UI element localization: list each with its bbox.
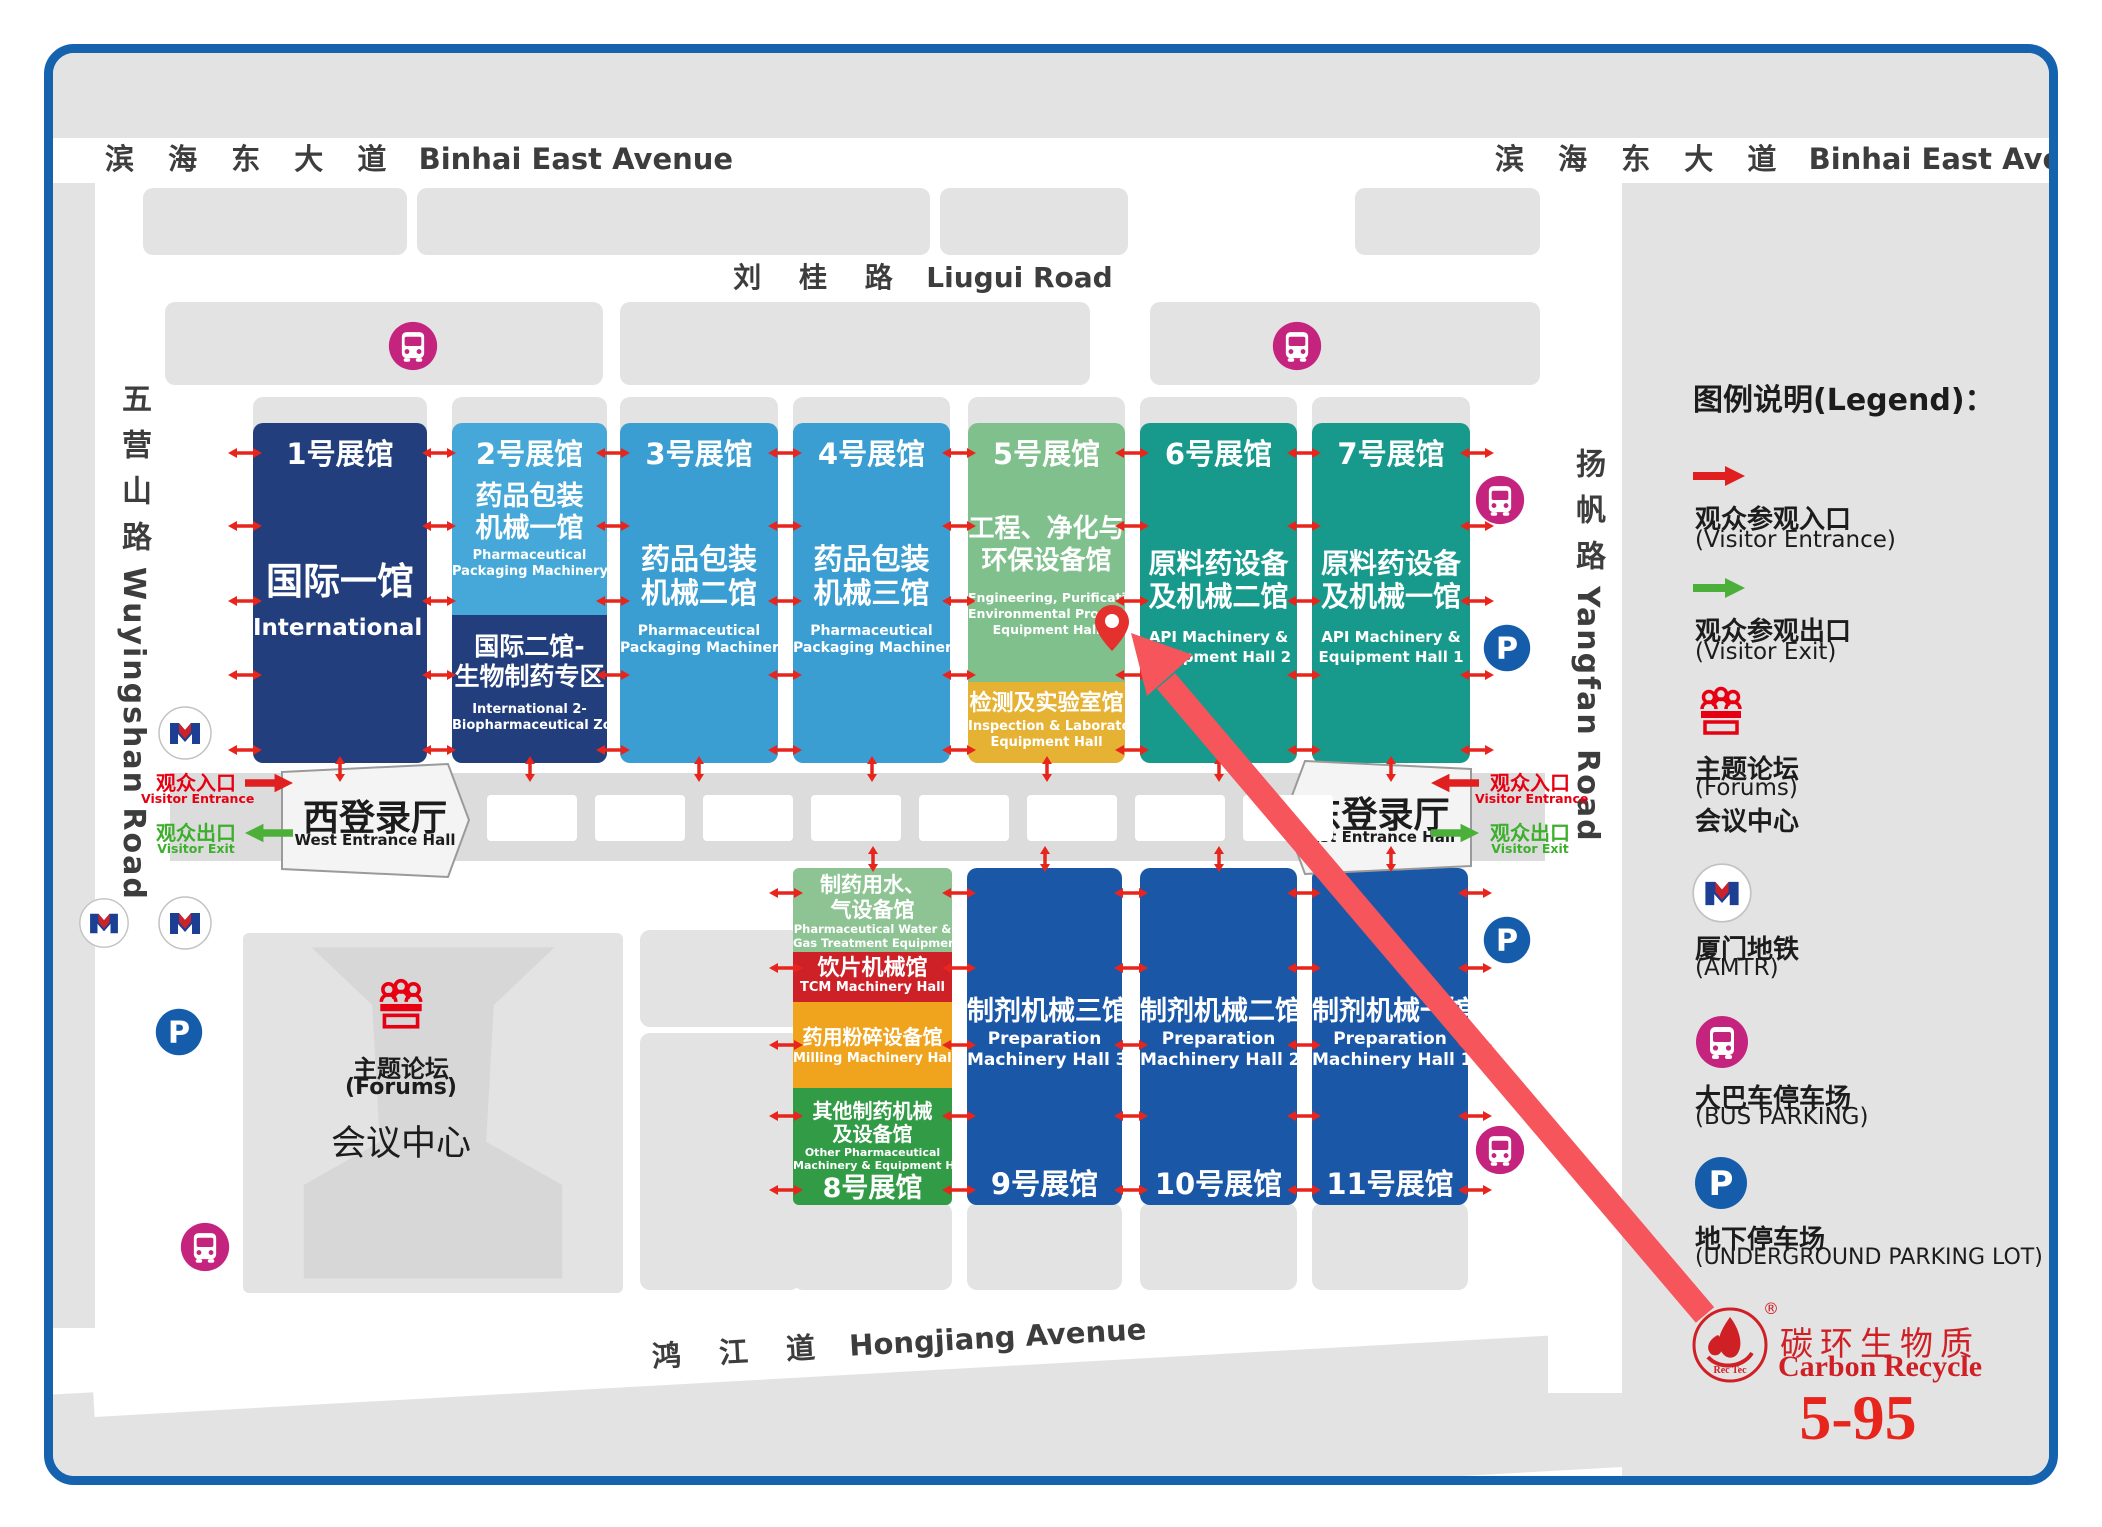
hall-2-bio-zone: 国际二馆- 生物制药专区 International 2- Biopharmac… (452, 615, 607, 763)
block (940, 188, 1128, 255)
hall-2-en2: Packaging Machinery Hall 1 (452, 565, 607, 580)
hall-slab (967, 1203, 1122, 1290)
metro-amtr-icon (157, 705, 213, 765)
bus-parking-icon (1271, 320, 1323, 376)
hall-4-en1: Pharmaceutical (793, 623, 950, 639)
carbon-recycle-logo: Rec Tec (1690, 1305, 1770, 1385)
hall-8-other-section: 其他制药机械 及设备馆 Other Pharmaceutical Machine… (793, 1088, 952, 1205)
connector-arrow-icon (768, 741, 802, 760)
svg-text:Rec Tec: Rec Tec (1713, 1365, 1747, 1376)
connector-arrow-icon (1115, 517, 1149, 536)
block (640, 1033, 800, 1290)
hall-11-zh: 制剂机械一馆 (1312, 996, 1468, 1027)
connector-arrow-icon (1115, 741, 1149, 760)
hall-9: 制剂机械三馆 Preparation Machinery Hall 3 9号展馆 (967, 868, 1122, 1205)
legend-metro-en: (AMTR) (1695, 955, 1779, 981)
hall-slab (793, 1203, 952, 1290)
hall-4-zh1: 药品包装 (793, 543, 950, 576)
connector-arrow-icon (942, 592, 976, 611)
hall-8-tcm-en: TCM Machinery Hall (793, 981, 952, 996)
hall-5-en1: Engineering, Purification & (968, 591, 1125, 605)
hall-7-en2: Equipment Hall 1 (1312, 649, 1470, 666)
hall-5-lab-section: 检测及实验室馆 Inspection & Laboratory Equipmen… (968, 682, 1125, 763)
hall-8-number: 8号展馆 (793, 1173, 952, 1204)
forums-icon (1693, 684, 1749, 744)
underground-parking-icon: P (1482, 915, 1532, 969)
hall-7-number: 7号展馆 (1312, 431, 1470, 473)
connector-arrow-icon (228, 444, 262, 463)
connector-arrow-icon (422, 666, 456, 685)
connector-arrow-icon (942, 884, 976, 903)
connector-arrow-icon (1114, 884, 1148, 903)
hall-8-other-en2: Machinery & Equipment Hall (793, 1160, 952, 1173)
hall-3-en2: Packaging Machinery Hall 2 (620, 640, 778, 656)
corridor-cell (1027, 795, 1117, 841)
brand-name-en: Carbon Recycle (1775, 1350, 1985, 1384)
connector-arrow-icon (596, 444, 630, 463)
hall-10-number: 10号展馆 (1140, 1168, 1297, 1201)
connector-arrow-icon (1460, 592, 1494, 611)
hall-6-number: 6号展馆 (1140, 431, 1297, 473)
hall-2-en1: Pharmaceutical (452, 549, 607, 564)
hall-slab (1312, 1203, 1468, 1290)
connector-arrow-icon (768, 444, 802, 463)
hall-9-en1: Preparation (967, 1030, 1122, 1050)
hall-3-number: 3号展馆 (620, 431, 778, 473)
block (1150, 302, 1540, 385)
hall-slab (1140, 1203, 1297, 1290)
connector-arrow-icon (422, 517, 456, 536)
hall-8-water-zh1: 制药用水、 (793, 873, 952, 897)
legend-entrance-arrow-icon (1693, 463, 1745, 489)
hall-2b-en1: International 2- (452, 703, 607, 718)
hall-10-zh: 制剂机械二馆 (1140, 996, 1297, 1027)
block (640, 930, 800, 1027)
connector-arrow-icon (1039, 846, 1051, 876)
connector-arrow-icon (1287, 666, 1321, 685)
connector-arrow-icon (228, 592, 262, 611)
hall-6-en2: Equipment Hall 2 (1140, 649, 1297, 666)
legend-exit-arrow-icon (1693, 575, 1745, 601)
connector-arrow-icon (228, 741, 262, 760)
legend-forums-extra: 会议中心 (1695, 801, 1799, 838)
connector-arrow-icon (942, 1181, 976, 1200)
hall-11: 制剂机械一馆 Preparation Machinery Hall 1 11号展… (1312, 868, 1468, 1205)
forums-building (243, 933, 623, 1293)
top-margin-block (44, 44, 2058, 138)
connector-arrow-icon (942, 741, 976, 760)
connector-arrow-icon (1385, 846, 1397, 876)
hall-5b-en1: Inspection & Laboratory (968, 720, 1125, 735)
east-visitor-exit-en: Visitor Exit (1475, 841, 1585, 856)
block (165, 302, 603, 385)
bus-parking-icon (179, 1221, 231, 1277)
connector-arrow-icon (1114, 1107, 1148, 1126)
connector-arrow-icon (1041, 756, 1053, 786)
connector-arrow-icon (524, 756, 536, 786)
underground-parking-icon: P (154, 1007, 204, 1061)
connector-arrow-icon (769, 1181, 803, 1200)
connector-arrow-icon (769, 1107, 803, 1126)
connector-arrow-icon (1287, 517, 1321, 536)
hall-8-other-zh2: 及设备馆 (793, 1123, 952, 1146)
hall-5-zh1: 工程、净化与 (968, 515, 1125, 545)
hall-6-zh2: 及机械二馆 (1140, 581, 1297, 613)
connector-arrow-icon (1115, 444, 1149, 463)
logo-registered-mark: ® (1763, 1299, 1779, 1318)
block (417, 188, 930, 255)
west-entrance-arrow-icon (245, 771, 293, 795)
hall-1: 1号展馆 国际一馆 International 1 (253, 423, 427, 763)
hall-5b-en2: Equipment Hall (968, 736, 1125, 751)
connector-arrow-icon (422, 592, 456, 611)
hall-2: 2号展馆 药品包装 机械一馆 Pharmaceutical Packaging … (452, 423, 607, 763)
svg-text:P: P (1709, 1164, 1734, 1204)
connector-arrow-icon (942, 1107, 976, 1126)
map-canvas: 鸿 江 道 Hongjiang Avenue 滨 海 东 大 道 Binhai … (53, 53, 2049, 1476)
hall-9-number: 9号展馆 (967, 1168, 1122, 1201)
hall-7-zh2: 及机械一馆 (1312, 581, 1470, 613)
legend-title: 图例说明(Legend)： (1693, 375, 1995, 419)
connector-arrow-icon (768, 517, 802, 536)
underground-parking-icon: P (1482, 623, 1532, 677)
hall-10-en2: Machinery Hall 2 (1140, 1051, 1297, 1071)
connector-arrow-icon (334, 756, 346, 786)
hall-8-water-en1: Pharmaceutical Water & (793, 923, 952, 936)
hall-4-zh2: 机械三馆 (793, 577, 950, 610)
connector-arrow-icon (1114, 1036, 1148, 1055)
hall-8-tcm-zh: 饮片机械馆 (793, 956, 952, 981)
connector-arrow-icon (1287, 1181, 1321, 1200)
corridor-cell (919, 795, 1009, 841)
connector-arrow-icon (596, 592, 630, 611)
hall-6-zh1: 原料药设备 (1140, 548, 1297, 580)
hall-5-zh2: 环保设备馆 (968, 547, 1125, 577)
hall-7-en1: API Machinery & (1312, 629, 1470, 646)
connector-arrow-icon (942, 1036, 976, 1055)
booth-number: 5-95 (1753, 1381, 1963, 1455)
map-frame: 鸿 江 道 Hongjiang Avenue 滨 海 东 大 道 Binhai … (44, 44, 2058, 1485)
booth-location-pin-icon (1095, 605, 1129, 651)
hall-2b-zh1: 国际二馆- (452, 633, 607, 662)
hall-8-milling-section: 药用粉碎设备馆 Milling Machinery Hall (793, 1002, 952, 1088)
bus-parking-icon (387, 320, 439, 376)
connector-arrow-icon (422, 741, 456, 760)
connector-arrow-icon (1114, 959, 1148, 978)
hall-11-number: 11号展馆 (1312, 1168, 1468, 1201)
corridor-cell (811, 795, 901, 841)
left-edge-block (53, 183, 95, 1328)
hall-8-milling-en: Milling Machinery Hall (793, 1052, 952, 1067)
block (620, 302, 1090, 385)
hall-6-en1: API Machinery & (1140, 629, 1297, 646)
forums-building-inner (243, 933, 623, 1293)
hall-3-zh1: 药品包装 (620, 543, 778, 576)
hall-5: 5号展馆 工程、净化与 环保设备馆 Engineering, Purificat… (968, 423, 1125, 763)
hall-9-zh: 制剂机械三馆 (967, 996, 1122, 1027)
hall-10: 制剂机械二馆 Preparation Machinery Hall 2 10号展… (1140, 868, 1297, 1205)
connector-arrow-icon (1287, 1107, 1321, 1126)
conference-center-label: 会议中心 (301, 1115, 501, 1166)
corridor-cell (1135, 795, 1225, 841)
connector-arrow-icon (942, 517, 976, 536)
connector-arrow-icon (1460, 444, 1494, 463)
legend-parking-en: (UNDERGROUND PARKING LOT) (1695, 1245, 2043, 1270)
connector-arrow-icon (1287, 884, 1321, 903)
corridor-cell (1243, 795, 1333, 841)
legend-forums-en: (Forums) (1695, 775, 1798, 801)
connector-arrow-icon (228, 666, 262, 685)
connector-arrow-icon (1385, 756, 1397, 786)
hall-4: 4号展馆 药品包装 机械三馆 Pharmaceutical Packaging … (793, 423, 950, 763)
west-entrance-hall: 西登录厅 West Entrance Hall (280, 763, 470, 878)
connector-arrow-icon (1287, 741, 1321, 760)
hall-8-tcm-section: 饮片机械馆 TCM Machinery Hall (793, 952, 952, 1002)
legend-entrance-en: (Visitor Entrance) (1695, 527, 1896, 553)
hall-2-zh2: 机械一馆 (452, 513, 607, 544)
hall-1-zh: 国际一馆 (253, 561, 427, 604)
connector-arrow-icon (942, 444, 976, 463)
hall-2-number: 2号展馆 (452, 431, 607, 473)
hall-8-other-en1: Other Pharmaceutical (793, 1147, 952, 1160)
hall-8-water-section: 制药用水、 气设备馆 Pharmaceutical Water & Gas Tr… (793, 868, 952, 952)
connector-arrow-icon (1287, 592, 1321, 611)
connector-arrow-icon (1287, 444, 1321, 463)
connector-arrow-icon (596, 741, 630, 760)
hall-5-number: 5号展馆 (968, 431, 1125, 473)
hall-6: 6号展馆 原料药设备 及机械二馆 API Machinery & Equipme… (1140, 423, 1297, 763)
connector-arrow-icon (228, 517, 262, 536)
connector-arrow-icon (1287, 1036, 1321, 1055)
svg-text:P: P (1496, 632, 1518, 667)
hall-2-zh1: 药品包装 (452, 481, 607, 512)
road-label-binhai-left: 滨 海 东 大 道 Binhai East Avenue (105, 138, 733, 180)
hall-11-en2: Machinery Hall 1 (1312, 1051, 1468, 1071)
connector-arrow-icon (866, 756, 878, 786)
hall-4-en2: Packaging Machinery Hall 3 (793, 640, 950, 656)
svg-text:P: P (1496, 924, 1518, 959)
block (143, 188, 407, 255)
hall-10-en1: Preparation (1140, 1030, 1297, 1050)
connector-arrow-icon (693, 756, 705, 786)
connector-arrow-icon (769, 1036, 803, 1055)
hall-11-en1: Preparation (1312, 1030, 1468, 1050)
hall-5b-zh: 检测及实验室馆 (968, 691, 1125, 716)
forums-label-en: (Forums) (301, 1075, 501, 1100)
connector-arrow-icon (942, 959, 976, 978)
hall-3: 3号展馆 药品包装 机械二馆 Pharmaceutical Packaging … (620, 423, 778, 763)
connector-arrow-icon (422, 444, 456, 463)
hall-3-zh2: 机械二馆 (620, 577, 778, 610)
connector-arrow-icon (1458, 1036, 1492, 1055)
connector-arrow-icon (768, 666, 802, 685)
connector-arrow-icon (768, 592, 802, 611)
hall-1-number: 1号展馆 (253, 431, 427, 473)
hall-9-en2: Machinery Hall 3 (967, 1051, 1122, 1071)
road-label-binhai-right: 滨 海 东 大 道 Binhai East Avenue (1495, 138, 2058, 180)
connector-arrow-icon (769, 959, 803, 978)
road-label-liugui: 刘 桂 路 Liugui Road (713, 255, 1133, 300)
connector-arrow-icon (1458, 1181, 1492, 1200)
hall-8-water-zh2: 气设备馆 (793, 898, 952, 922)
east-entrance-arrow-icon (1431, 771, 1479, 795)
metro-amtr-icon (78, 897, 130, 953)
legend-exit-en: (Visitor Exit) (1695, 639, 1836, 665)
hall-2b-zh2: 生物制药专区 (452, 663, 607, 692)
metro-amtr-icon (157, 895, 213, 955)
underground-parking-icon: P (1693, 1155, 1749, 1215)
connector-arrow-icon (867, 846, 879, 876)
connector-arrow-icon (1287, 959, 1321, 978)
west-visitor-exit-en: Visitor Exit (141, 841, 251, 856)
expo-map-page: 鸿 江 道 Hongjiang Avenue 滨 海 东 大 道 Binhai … (0, 0, 2102, 1527)
connector-arrow-icon (1115, 666, 1149, 685)
east-exit-arrow-icon (1431, 821, 1479, 845)
connector-arrow-icon (1458, 884, 1492, 903)
hall-8-water-en2: Gas Treatment Equipment (793, 937, 952, 950)
connector-arrow-icon (1460, 741, 1494, 760)
block (1355, 188, 1540, 255)
bus-parking-icon (1474, 474, 1526, 530)
corridor-cell (703, 795, 793, 841)
hall-8-other-zh1: 其他制药机械 (793, 1100, 952, 1123)
connector-arrow-icon (1114, 1181, 1148, 1200)
corridor-cell (487, 795, 577, 841)
hall-4-number: 4号展馆 (793, 431, 950, 473)
metro-amtr-icon (1691, 862, 1753, 928)
legend-bus-en: (BUS PARKING) (1695, 1104, 1868, 1130)
bus-parking-icon (1474, 1124, 1526, 1180)
hall-2b-en2: Biopharmaceutical Zone (452, 719, 607, 734)
svg-text:P: P (168, 1016, 190, 1051)
connector-arrow-icon (1213, 756, 1225, 786)
west-entrance-en: West Entrance Hall (280, 831, 470, 849)
connector-arrow-icon (1213, 846, 1225, 876)
west-exit-arrow-icon (245, 821, 293, 845)
east-visitor-entrance-en: Visitor Entrance (1475, 791, 1585, 806)
hall-7-zh1: 原料药设备 (1312, 548, 1470, 580)
hall-1-en: International 1 (253, 615, 427, 641)
hall-8-milling-zh: 药用粉碎设备馆 (793, 1026, 952, 1049)
corridor-cell (595, 795, 685, 841)
hall-3-en1: Pharmaceutical (620, 623, 778, 639)
bus-parking-icon (1694, 1014, 1750, 1074)
west-visitor-entrance-en: Visitor Entrance (141, 791, 251, 806)
connector-arrow-icon (769, 884, 803, 903)
connector-arrow-icon (596, 517, 630, 536)
hall-7: 7号展馆 原料药设备 及机械一馆 API Machinery & Equipme… (1312, 423, 1470, 763)
forums-icon (372, 976, 430, 1038)
connector-arrow-icon (942, 666, 976, 685)
connector-arrow-icon (596, 666, 630, 685)
